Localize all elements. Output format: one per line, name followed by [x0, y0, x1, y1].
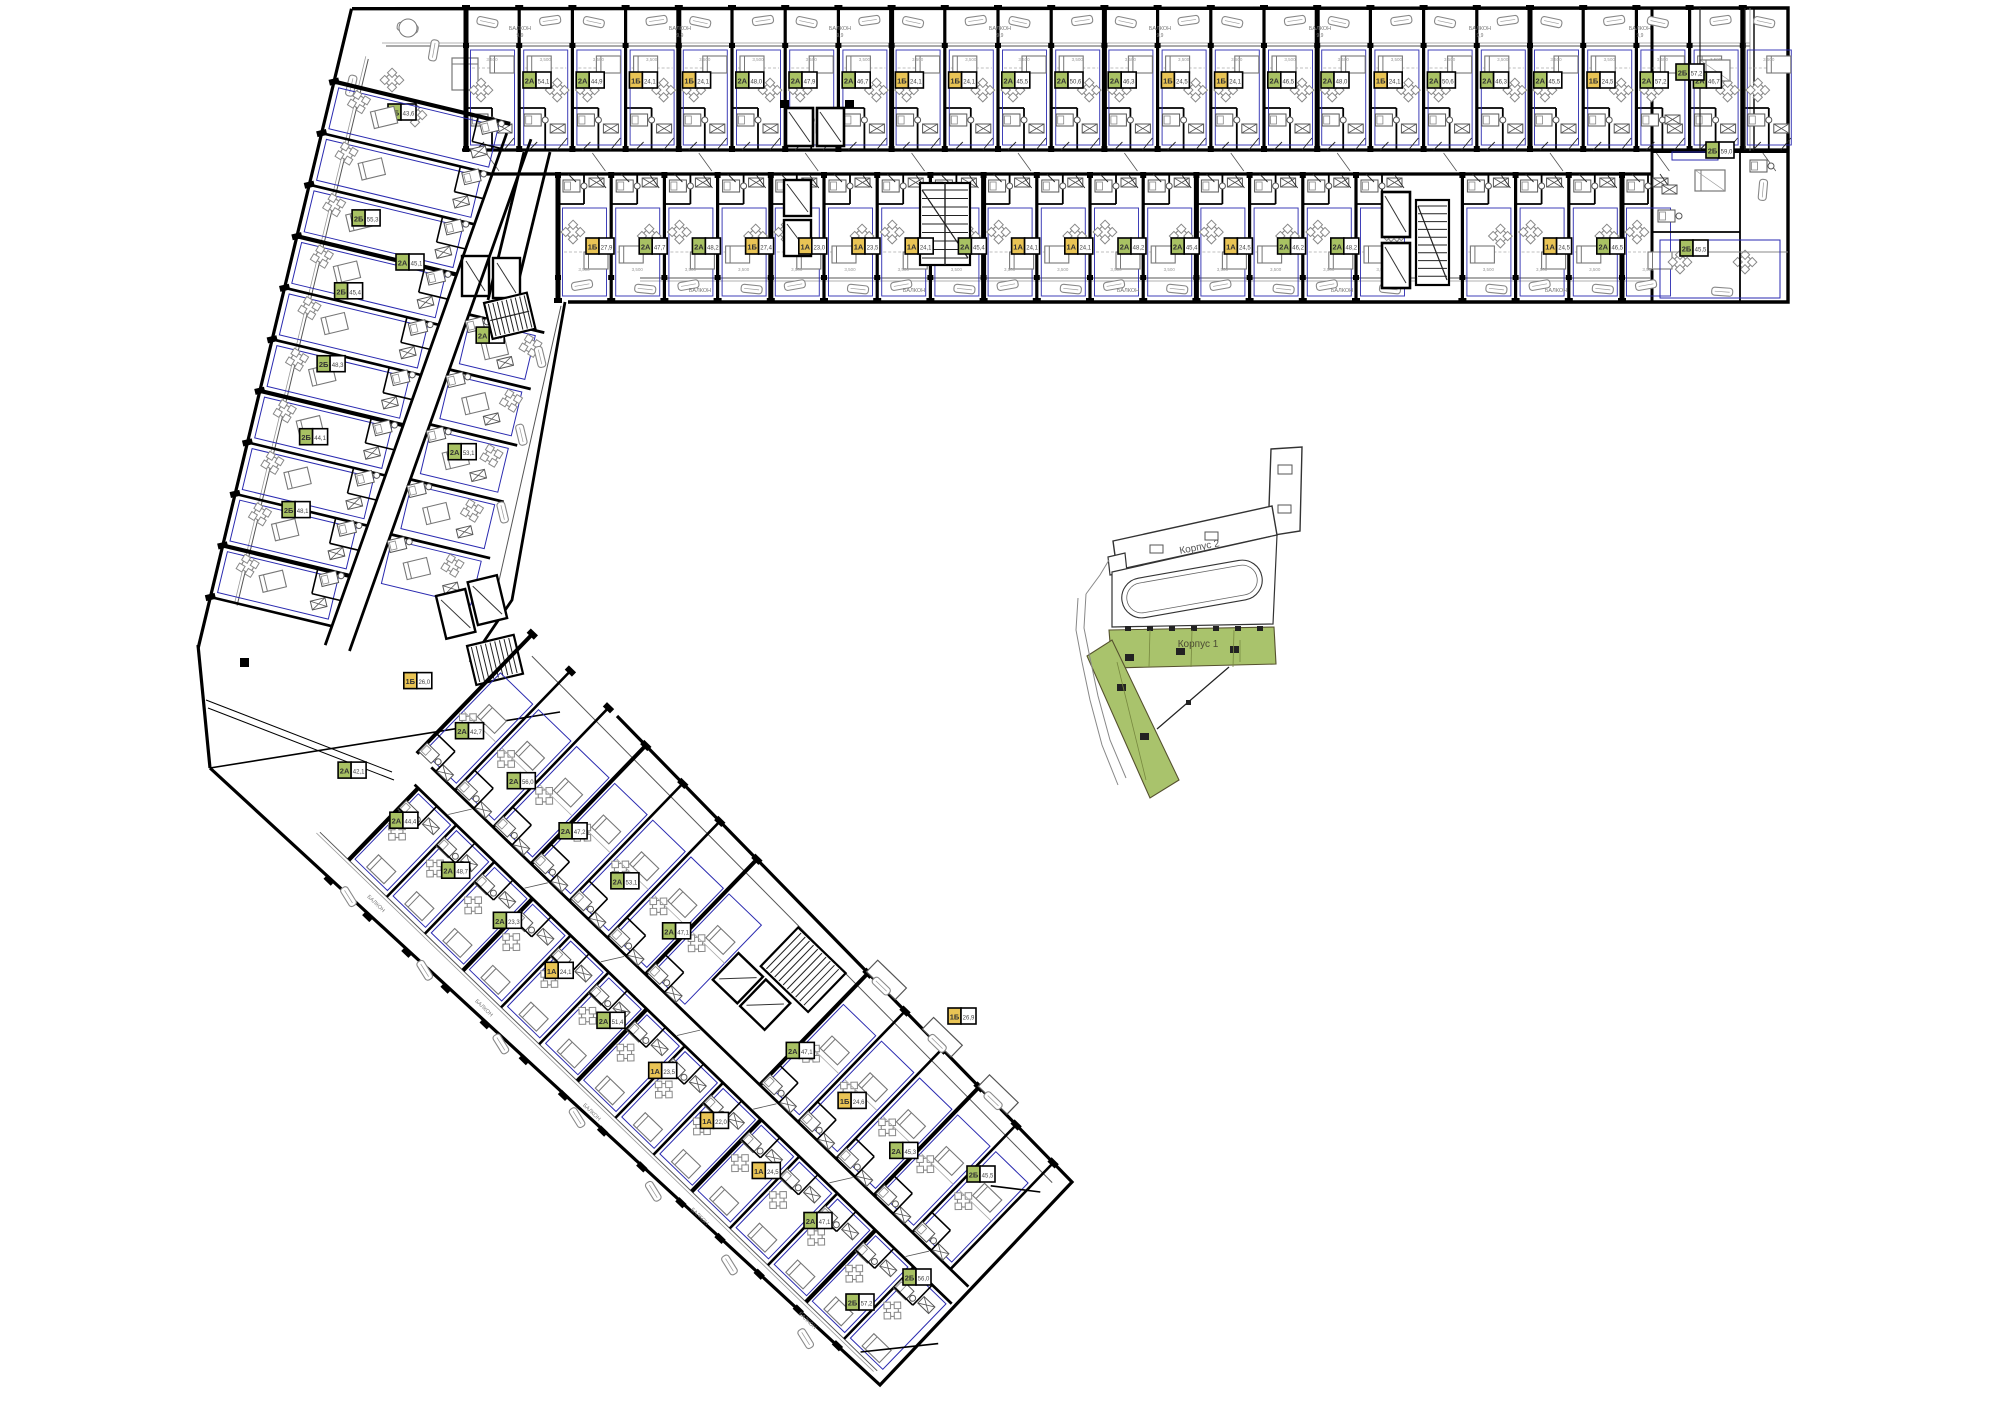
svg-text:БАЛКОН: БАЛКОН [903, 288, 925, 294]
svg-text:2А: 2А [791, 77, 801, 86]
svg-text:2А: 2А [892, 1147, 902, 1156]
svg-text:47,1: 47,1 [801, 1050, 813, 1056]
svg-text:3,500: 3,500 [806, 57, 818, 62]
svg-text:1А: 1А [1013, 243, 1023, 252]
svg-text:46,3: 46,3 [1123, 80, 1135, 86]
svg-text:54,1: 54,1 [538, 80, 550, 86]
svg-text:9,9: 9,9 [1637, 33, 1644, 39]
svg-text:26,9: 26,9 [963, 1016, 975, 1022]
svg-text:9,9: 9,9 [1477, 33, 1484, 39]
svg-text:45,5: 45,5 [1695, 248, 1707, 254]
svg-text:БАЛКОН: БАЛКОН [1149, 26, 1171, 32]
svg-text:9,9: 9,9 [677, 33, 684, 39]
svg-text:59,0: 59,0 [1721, 150, 1733, 156]
svg-text:48,1: 48,1 [297, 509, 309, 515]
svg-text:45,4: 45,4 [349, 290, 361, 296]
svg-text:3,500: 3,500 [1323, 267, 1335, 272]
svg-text:9,9: 9,9 [1317, 33, 1324, 39]
svg-text:2А: 2А [1599, 243, 1609, 252]
svg-text:45,4: 45,4 [1186, 246, 1198, 252]
svg-text:23,5: 23,5 [663, 1070, 675, 1076]
svg-text:1А: 1А [650, 1067, 660, 1076]
svg-text:24,1: 24,1 [963, 80, 975, 86]
svg-text:24,5: 24,5 [1602, 80, 1614, 86]
svg-text:24,1: 24,1 [1026, 246, 1038, 252]
svg-text:24,1: 24,1 [560, 970, 572, 976]
svg-text:БАЛКОН: БАЛКОН [989, 26, 1011, 32]
svg-text:47,7: 47,7 [654, 246, 666, 252]
svg-text:24,1: 24,1 [1389, 80, 1401, 86]
svg-text:2А: 2А [1536, 77, 1546, 86]
svg-text:2А: 2А [478, 332, 488, 341]
svg-text:2А: 2А [613, 877, 623, 886]
svg-text:3,500: 3,500 [1536, 267, 1548, 272]
svg-text:3,500: 3,500 [951, 267, 963, 272]
svg-text:2Б: 2Б [969, 1171, 979, 1180]
svg-text:24,5: 24,5 [1558, 246, 1570, 252]
svg-text:3,500: 3,500 [1125, 57, 1137, 62]
svg-text:24,1: 24,1 [920, 246, 932, 252]
svg-text:2А: 2А [806, 1217, 816, 1226]
svg-text:48,2: 48,2 [1133, 246, 1145, 252]
svg-text:48,3: 48,3 [332, 363, 344, 369]
svg-text:23,3: 23,3 [508, 920, 520, 926]
svg-text:2А: 2А [1333, 243, 1343, 252]
svg-text:3,500: 3,500 [632, 267, 644, 272]
svg-text:2Б: 2Б [1678, 69, 1688, 78]
svg-text:55,3: 55,3 [367, 217, 379, 223]
svg-text:2А: 2А [844, 77, 854, 86]
svg-text:3,500: 3,500 [1444, 57, 1456, 62]
svg-text:24,1: 24,1 [644, 80, 656, 86]
svg-text:46,5: 46,5 [1282, 80, 1294, 86]
svg-text:9,9: 9,9 [997, 33, 1004, 39]
svg-text:2А: 2А [495, 917, 505, 926]
svg-text:1Б: 1Б [1376, 77, 1386, 86]
svg-text:2А: 2А [398, 259, 408, 268]
svg-text:56,0: 56,0 [522, 780, 534, 786]
svg-text:2Б: 2Б [284, 506, 294, 515]
svg-text:48,2: 48,2 [707, 246, 719, 252]
svg-text:24,1: 24,1 [1079, 246, 1091, 252]
svg-text:3,500: 3,500 [1589, 267, 1601, 272]
svg-text:3,500: 3,500 [1497, 57, 1509, 62]
svg-text:45,4: 45,4 [973, 246, 985, 252]
svg-text:БАЛКОН: БАЛКОН [829, 26, 851, 32]
svg-text:48,0: 48,0 [750, 80, 762, 86]
svg-text:Корпус 1: Корпус 1 [1178, 639, 1219, 650]
svg-text:3,500: 3,500 [859, 57, 871, 62]
svg-text:48,0: 48,0 [1336, 80, 1348, 86]
svg-text:45,5: 45,5 [1016, 80, 1028, 86]
svg-text:3,500: 3,500 [646, 57, 658, 62]
svg-text:2А: 2А [561, 827, 571, 836]
svg-text:1Б: 1Б [1216, 77, 1226, 86]
svg-text:1Б: 1Б [406, 677, 416, 686]
svg-text:46,5: 46,5 [1611, 246, 1623, 252]
svg-text:56,0: 56,0 [918, 1277, 930, 1283]
svg-text:2Б: 2Б [1708, 147, 1718, 156]
svg-text:2Б: 2Б [848, 1299, 858, 1308]
svg-text:3,500: 3,500 [1763, 57, 1775, 62]
svg-text:57,2: 57,2 [1691, 72, 1703, 78]
svg-text:3,500: 3,500 [1284, 57, 1296, 62]
svg-text:БАЛКОН: БАЛКОН [509, 26, 531, 32]
svg-text:БАЛКОН: БАЛКОН [669, 26, 691, 32]
svg-text:1Б: 1Б [588, 243, 598, 252]
svg-text:1А: 1А [1067, 243, 1077, 252]
svg-text:1А: 1А [1545, 243, 1555, 252]
svg-text:1Б: 1Б [950, 1013, 960, 1022]
svg-text:24,1: 24,1 [910, 80, 922, 86]
svg-text:1Б: 1Б [631, 77, 641, 86]
svg-text:24,5: 24,5 [767, 1170, 779, 1176]
svg-text:1А: 1А [1226, 243, 1236, 252]
svg-text:2А: 2А [738, 77, 748, 86]
svg-text:2А: 2А [1057, 77, 1067, 86]
svg-text:1Б: 1Б [1163, 77, 1173, 86]
svg-text:2А: 2А [960, 243, 970, 252]
svg-text:22,0: 22,0 [715, 1120, 727, 1126]
svg-text:42,7: 42,7 [470, 730, 482, 736]
svg-text:3,500: 3,500 [578, 267, 590, 272]
svg-text:3,500: 3,500 [540, 57, 552, 62]
svg-text:24,5: 24,5 [1239, 246, 1251, 252]
svg-text:1А: 1А [547, 967, 557, 976]
svg-text:3,500: 3,500 [1642, 267, 1654, 272]
svg-text:2А: 2А [578, 77, 588, 86]
svg-text:2А: 2А [1120, 243, 1130, 252]
svg-text:27,4: 27,4 [760, 246, 772, 252]
svg-text:47,1: 47,1 [819, 1220, 831, 1226]
svg-text:1А: 1А [702, 1117, 712, 1126]
svg-text:24,1: 24,1 [697, 80, 709, 86]
svg-text:3,500: 3,500 [738, 267, 750, 272]
svg-text:2А: 2А [443, 867, 453, 876]
svg-text:9,9: 9,9 [517, 33, 524, 39]
svg-text:46,7: 46,7 [1708, 80, 1720, 86]
svg-text:3,500: 3,500 [1178, 57, 1190, 62]
svg-text:2А: 2А [599, 1017, 609, 1026]
svg-text:2А: 2А [1482, 77, 1492, 86]
svg-text:3,500: 3,500 [1164, 267, 1176, 272]
svg-text:45,5: 45,5 [982, 1174, 994, 1180]
svg-text:2А: 2А [450, 448, 460, 457]
svg-text:3,500: 3,500 [1057, 267, 1069, 272]
svg-text:2А: 2А [392, 817, 402, 826]
svg-text:3,500: 3,500 [1231, 57, 1243, 62]
svg-text:53,1: 53,1 [463, 451, 475, 457]
svg-text:1А: 1А [754, 1167, 764, 1176]
svg-text:1А: 1А [907, 243, 917, 252]
svg-text:48,7: 48,7 [456, 870, 468, 876]
svg-text:47,1: 47,1 [677, 930, 689, 936]
svg-text:2А: 2А [509, 777, 519, 786]
svg-text:24,6: 24,6 [853, 1100, 865, 1106]
svg-text:3,500: 3,500 [1217, 267, 1229, 272]
svg-text:2Б: 2Б [336, 287, 346, 296]
svg-text:3,500: 3,500 [1072, 57, 1084, 62]
svg-text:3,500: 3,500 [791, 267, 803, 272]
svg-text:44,1: 44,1 [314, 436, 326, 442]
svg-text:3,500: 3,500 [965, 57, 977, 62]
svg-text:2А: 2А [1429, 77, 1439, 86]
svg-text:1Б: 1Б [897, 77, 907, 86]
svg-text:3,500: 3,500 [912, 57, 924, 62]
svg-text:2А: 2А [788, 1047, 798, 1056]
svg-text:2А: 2А [1173, 243, 1183, 252]
svg-text:2А: 2А [641, 243, 651, 252]
svg-text:2Б: 2Б [354, 214, 364, 223]
svg-text:24,1: 24,1 [1229, 80, 1241, 86]
svg-text:51,4: 51,4 [612, 1020, 624, 1026]
svg-text:2А: 2А [694, 243, 704, 252]
svg-text:1А: 1А [801, 243, 811, 252]
svg-text:1Б: 1Б [1589, 77, 1599, 86]
svg-text:26,0: 26,0 [418, 680, 430, 686]
svg-text:3,500: 3,500 [1604, 57, 1616, 62]
svg-text:2А: 2А [1110, 77, 1120, 86]
svg-text:3,500: 3,500 [593, 57, 605, 62]
svg-text:3,500: 3,500 [1018, 57, 1030, 62]
svg-text:БАЛКОН: БАЛКОН [1331, 288, 1353, 294]
svg-text:47,9: 47,9 [804, 80, 816, 86]
svg-text:3,500: 3,500 [1391, 57, 1403, 62]
svg-text:1Б: 1Б [747, 243, 757, 252]
svg-text:БАЛКОН: БАЛКОН [1117, 288, 1139, 294]
svg-text:44,4: 44,4 [405, 820, 417, 826]
svg-text:1Б: 1Б [684, 77, 694, 86]
svg-text:43,6: 43,6 [403, 112, 415, 118]
svg-text:3,500: 3,500 [1110, 267, 1122, 272]
svg-text:53,1: 53,1 [626, 880, 638, 886]
svg-text:БАЛКОН: БАЛКОН [1629, 26, 1651, 32]
svg-text:9,9: 9,9 [1157, 33, 1164, 39]
svg-text:46,7: 46,7 [857, 80, 869, 86]
svg-text:2А: 2А [1642, 77, 1652, 86]
svg-text:БАЛКОН: БАЛКОН [1545, 288, 1567, 294]
svg-text:1А: 1А [854, 243, 864, 252]
svg-text:1Б: 1Б [950, 77, 960, 86]
svg-text:3,500: 3,500 [1270, 267, 1282, 272]
svg-text:2А: 2А [340, 767, 350, 776]
svg-text:23,0: 23,0 [813, 246, 825, 252]
svg-text:46,2: 46,2 [1292, 246, 1304, 252]
svg-text:23,5: 23,5 [867, 246, 879, 252]
svg-text:57,2: 57,2 [861, 1302, 873, 1308]
svg-text:3,500: 3,500 [898, 267, 910, 272]
svg-text:9,9: 9,9 [837, 33, 844, 39]
svg-text:2А: 2А [664, 927, 674, 936]
svg-text:3,500: 3,500 [752, 57, 764, 62]
svg-text:45,5: 45,5 [1548, 80, 1560, 86]
svg-text:2А: 2А [1323, 77, 1333, 86]
svg-text:47,2: 47,2 [574, 830, 586, 836]
svg-text:2Б: 2Б [1682, 245, 1692, 254]
svg-text:2Б: 2Б [905, 1274, 915, 1283]
svg-text:3,500: 3,500 [685, 267, 697, 272]
svg-text:45,1: 45,1 [411, 262, 423, 268]
svg-text:2А: 2А [1004, 77, 1014, 86]
svg-text:46,3: 46,3 [1495, 80, 1507, 86]
svg-text:3,500: 3,500 [1338, 57, 1350, 62]
svg-text:БАЛКОН: БАЛКОН [1469, 26, 1491, 32]
svg-text:42,1: 42,1 [353, 770, 365, 776]
svg-text:2А: 2А [1279, 243, 1289, 252]
svg-text:2А: 2А [525, 77, 535, 86]
svg-text:3,500: 3,500 [486, 57, 498, 62]
svg-text:3,500: 3,500 [699, 57, 711, 62]
svg-text:27,9: 27,9 [601, 246, 613, 252]
svg-text:44,9: 44,9 [591, 80, 603, 86]
svg-text:3,500: 3,500 [1657, 57, 1669, 62]
svg-text:3,500: 3,500 [1004, 267, 1016, 272]
svg-text:45,3: 45,3 [904, 1150, 916, 1156]
svg-text:1Б: 1Б [840, 1097, 850, 1106]
svg-text:3,500: 3,500 [844, 267, 856, 272]
svg-text:50,6: 50,6 [1070, 80, 1082, 86]
svg-text:БАЛКОН: БАЛКОН [1309, 26, 1331, 32]
svg-text:2А: 2А [457, 727, 467, 736]
svg-text:2А: 2А [1270, 77, 1280, 86]
svg-text:50,6: 50,6 [1442, 80, 1454, 86]
svg-text:24,5: 24,5 [1176, 80, 1188, 86]
svg-text:БАЛКОН: БАЛКОН [689, 288, 711, 294]
svg-text:2Б: 2Б [319, 360, 329, 369]
svg-text:2Б: 2Б [301, 433, 311, 442]
svg-text:3,500: 3,500 [1550, 57, 1562, 62]
svg-text:57,2: 57,2 [1655, 80, 1667, 86]
svg-text:48,2: 48,2 [1345, 246, 1357, 252]
svg-text:3,500: 3,500 [1483, 267, 1495, 272]
